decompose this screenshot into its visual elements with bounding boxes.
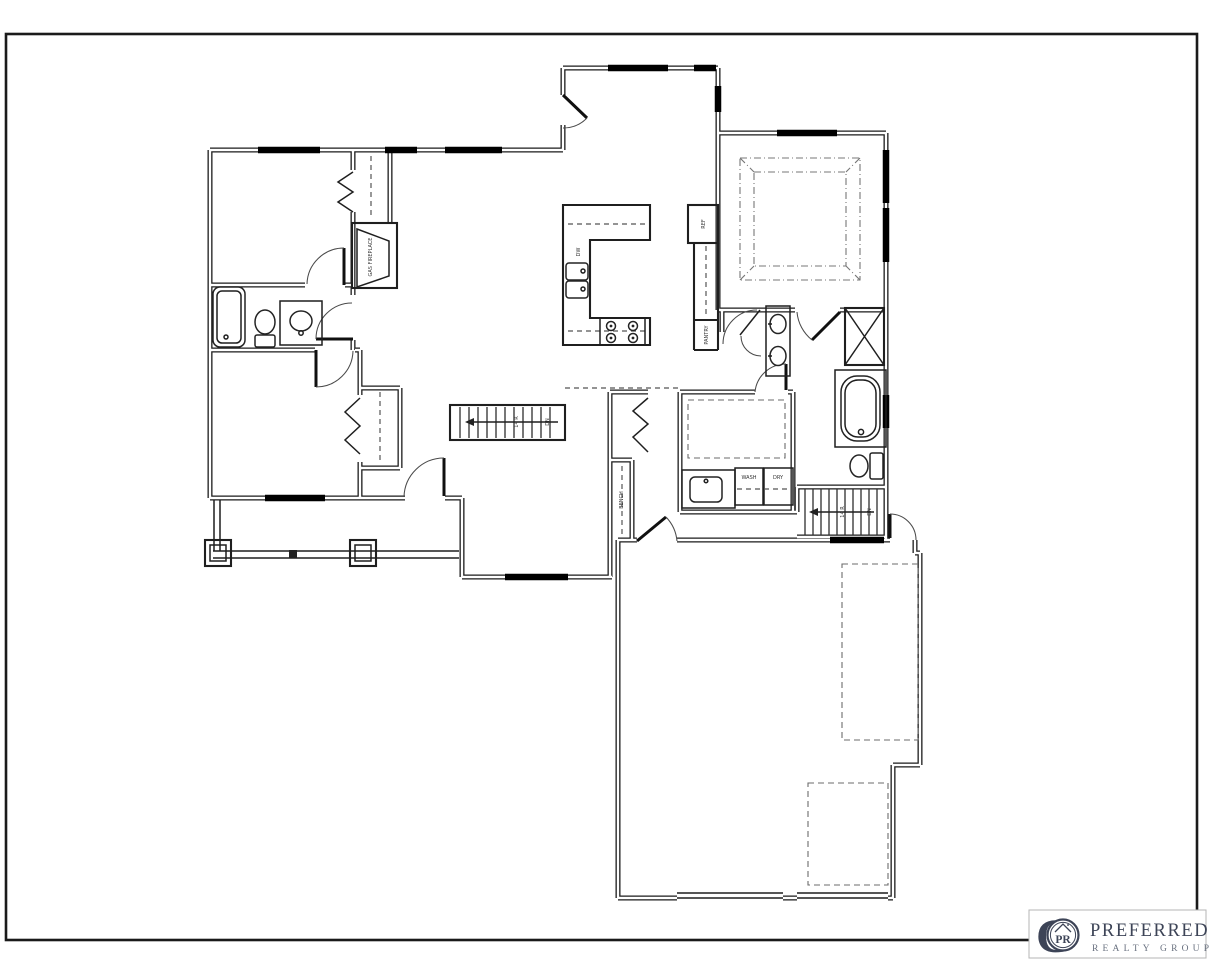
logo-monogram: PR [1055,934,1071,946]
bathtub [213,287,245,347]
porch-rail-newel [289,550,297,558]
logo-tagline: REALTY GROUP [1092,944,1213,954]
bench-label: BENCH [619,491,625,509]
refrigerator-label: REF [701,219,707,229]
stairs-direction-label: DN [867,508,873,516]
stairs-riser-label: 14 R [840,506,846,518]
logo-brand-name: PREFERRED [1090,921,1209,941]
stairs-direction-label: DN [545,418,551,426]
sink [770,315,786,334]
toilet [255,310,275,334]
fireplace-label: GAS FIREPLACE [368,238,374,277]
floor-plan-drawing: GAS FIREPLACE 14 R DN DW [0,0,1213,960]
pantry-label: PANTRY [704,324,710,344]
floor-plan-sheet: GAS FIREPLACE 14 R DN DW [0,0,1213,960]
washer-label: WASH [741,475,756,481]
dryer-label: DRY [773,475,784,481]
sink [290,311,312,331]
toilet [850,455,868,477]
laundry-sink [690,477,722,502]
stairs-riser-label: 14 R [514,416,520,428]
sheet-border [6,34,1197,940]
brand-logo: G PR PREFERRED REALTY GROUP [1029,910,1213,960]
dishwasher-label: DW [576,248,582,257]
sink [770,347,786,366]
